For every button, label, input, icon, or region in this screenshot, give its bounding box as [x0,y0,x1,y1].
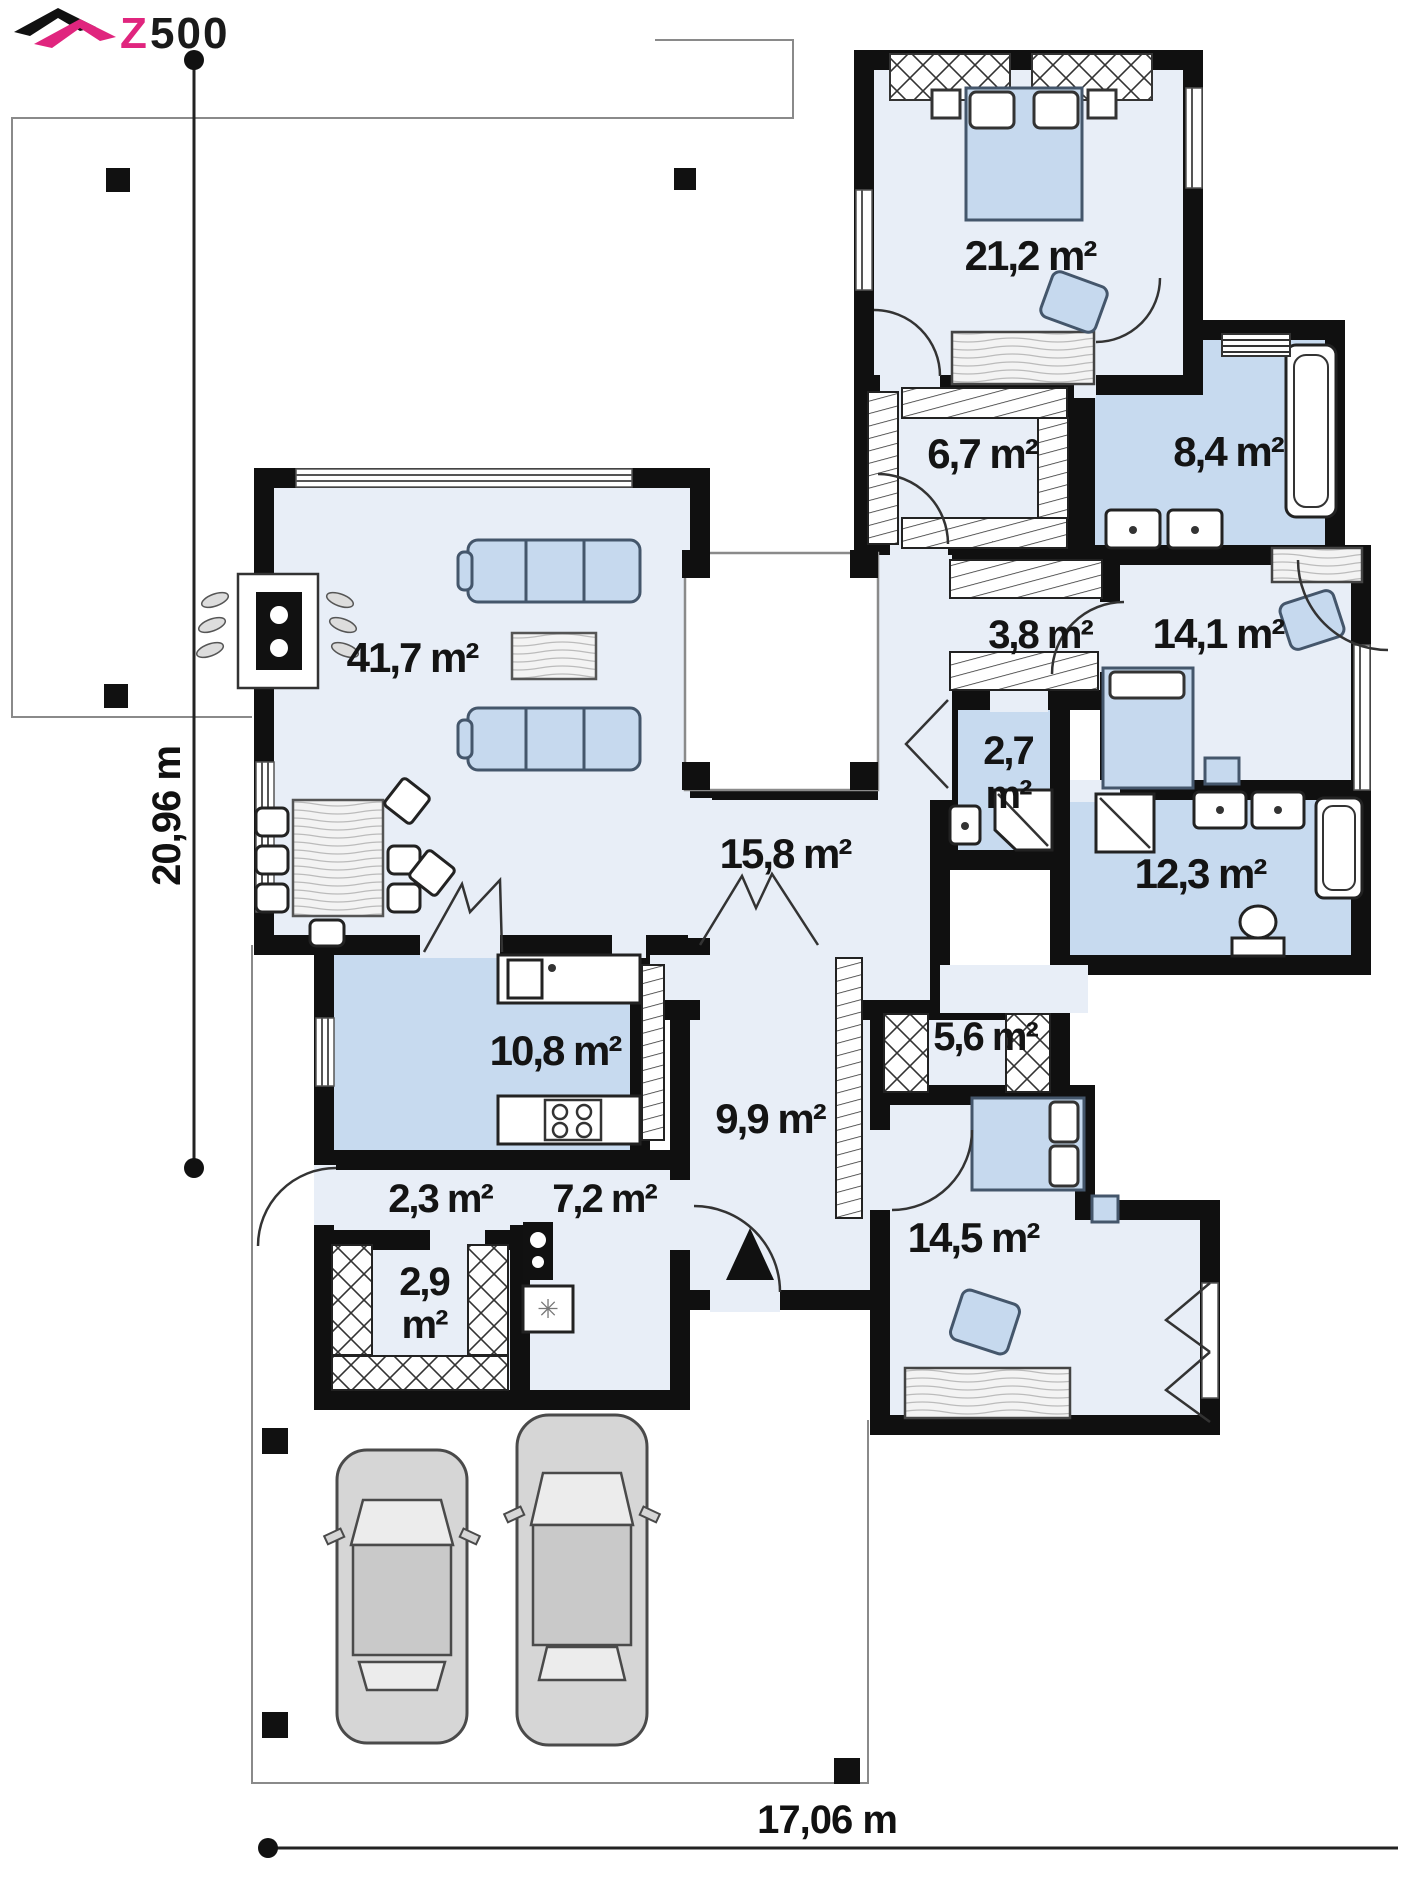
room-label-bedroom-south: 14,5 m² [908,1214,1041,1261]
wardrobe-56-left [884,1014,928,1092]
room-label-wardrobe: 5,6 m² [933,1015,1038,1059]
desk-south [905,1368,1070,1418]
room-label-wc-line2: m² [986,773,1033,817]
vertical-dimension-line [184,50,204,1178]
corridor-wardrobe-bottom [950,652,1098,690]
car-right [504,1415,660,1745]
post [674,168,696,190]
room-label-closet-line1: 2,9 [399,1260,449,1304]
nightstand [1088,90,1116,118]
desk-north [952,332,1094,384]
pillow [1110,672,1184,698]
room-label-bedroom-east: 14,1 m² [1153,610,1286,657]
patio-post-se [850,762,878,790]
stove [545,1100,601,1140]
boiler [523,1222,553,1280]
z500-logo: Z 500 [14,8,229,58]
corridor-wardrobe-top [950,560,1102,598]
post [262,1712,288,1738]
room-label-wardrobe-north: 6,7 m² [927,430,1038,477]
room-label-living: 41,7 m² [347,634,480,681]
closet-shelf-bottom [332,1356,508,1390]
sofa-top [458,540,640,602]
bedroom-north-west-window [856,190,872,290]
height-dimension-label: 20,96 m [145,746,189,886]
pillow [1034,92,1078,128]
bedroom-north-east-window [1186,88,1202,188]
post [106,168,130,192]
post [262,1428,288,1454]
pillow [1050,1102,1078,1142]
room-label-closet-line2: m² [402,1303,449,1347]
nightstand [932,90,960,118]
room-label-bathroom-east: 12,3 m² [1135,850,1268,897]
coffee-table [512,633,596,679]
width-dimension-label: 17,06 m [757,1798,897,1842]
room-label-corridor: 3,8 m² [988,613,1093,657]
pillow [970,92,1014,128]
bedroom-south-east-door-window [1202,1283,1218,1398]
kitchen-west-window [316,1018,334,1086]
wardrobe-north-left-shelf [868,392,898,544]
room-label-entry: 2,3 m² [388,1177,493,1221]
closet-shelf-left [332,1245,372,1355]
patio-post-nw [682,550,710,578]
desk-east [1272,548,1362,582]
pillow [1050,1146,1078,1186]
car-left [324,1450,480,1743]
entrance-hall-wardrobe [836,958,862,1218]
nightstand [1092,1196,1118,1222]
post [104,684,128,708]
room-label-kitchen: 10,8 m² [490,1027,623,1074]
sofa-bottom [458,708,640,770]
nightstand [1205,758,1239,784]
towel-radiator [1222,334,1290,356]
patio [682,550,878,790]
logo-text-500: 500 [150,9,229,58]
room-label-bedroom-north: 21,2 m² [965,232,1098,279]
bedroom-east-window [1354,645,1370,790]
dining-table [293,800,383,916]
wardrobe-north-top-shelf [902,388,1067,418]
room-label-wc-line1: 2,7 [983,729,1033,773]
room-label-hall: 15,8 m² [720,830,853,877]
logo-text-z: Z [120,9,149,58]
room-label-entrance-hall: 9,9 m² [715,1095,826,1142]
wardrobe-north-right-shelf [1038,418,1068,518]
closet-shelf-right [468,1245,508,1355]
floor-plan-page: 20,96 m 17,06 m [0,0,1403,1890]
room-label-bathroom-north: 8,4 m² [1173,428,1284,475]
kitchen-tall-cabinet [642,965,664,1140]
living-top-window [296,469,632,487]
patio-post-ne [850,550,878,578]
floor-plan-drawing: 20,96 m 17,06 m [0,0,1403,1890]
post [834,1758,860,1784]
room-label-utility: 7,2 m² [552,1177,657,1221]
wardrobe-north-bottom-shelf [902,518,1067,548]
kitchen-sink [508,960,542,998]
washing-machine-icon: ✳ [537,1294,559,1324]
patio-post-sw [682,762,710,790]
